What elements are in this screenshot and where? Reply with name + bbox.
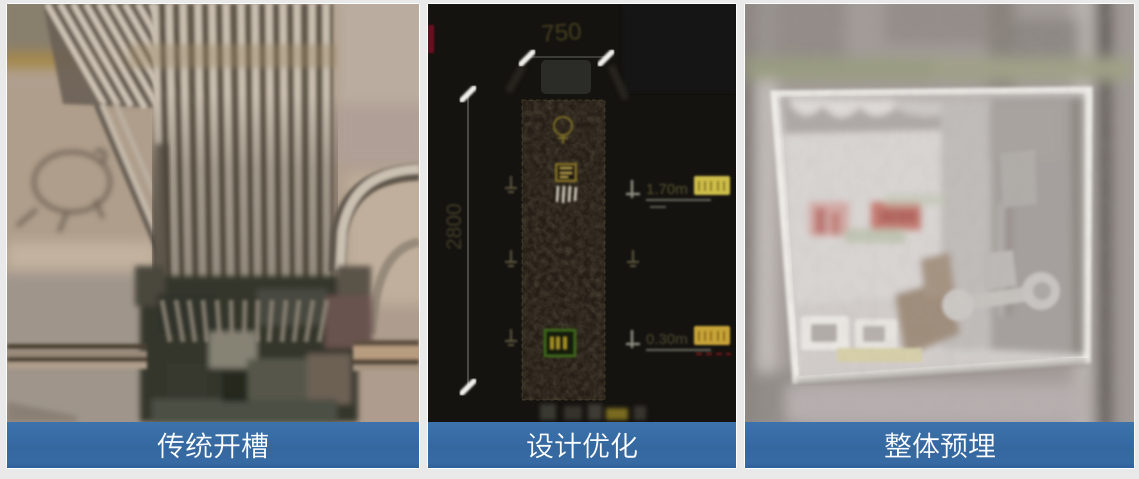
svg-text:1.70m: 1.70m (646, 181, 688, 198)
svg-text:750: 750 (541, 18, 583, 48)
svg-text:2800: 2800 (443, 203, 466, 250)
svg-text:0.30m: 0.30m (646, 331, 688, 348)
